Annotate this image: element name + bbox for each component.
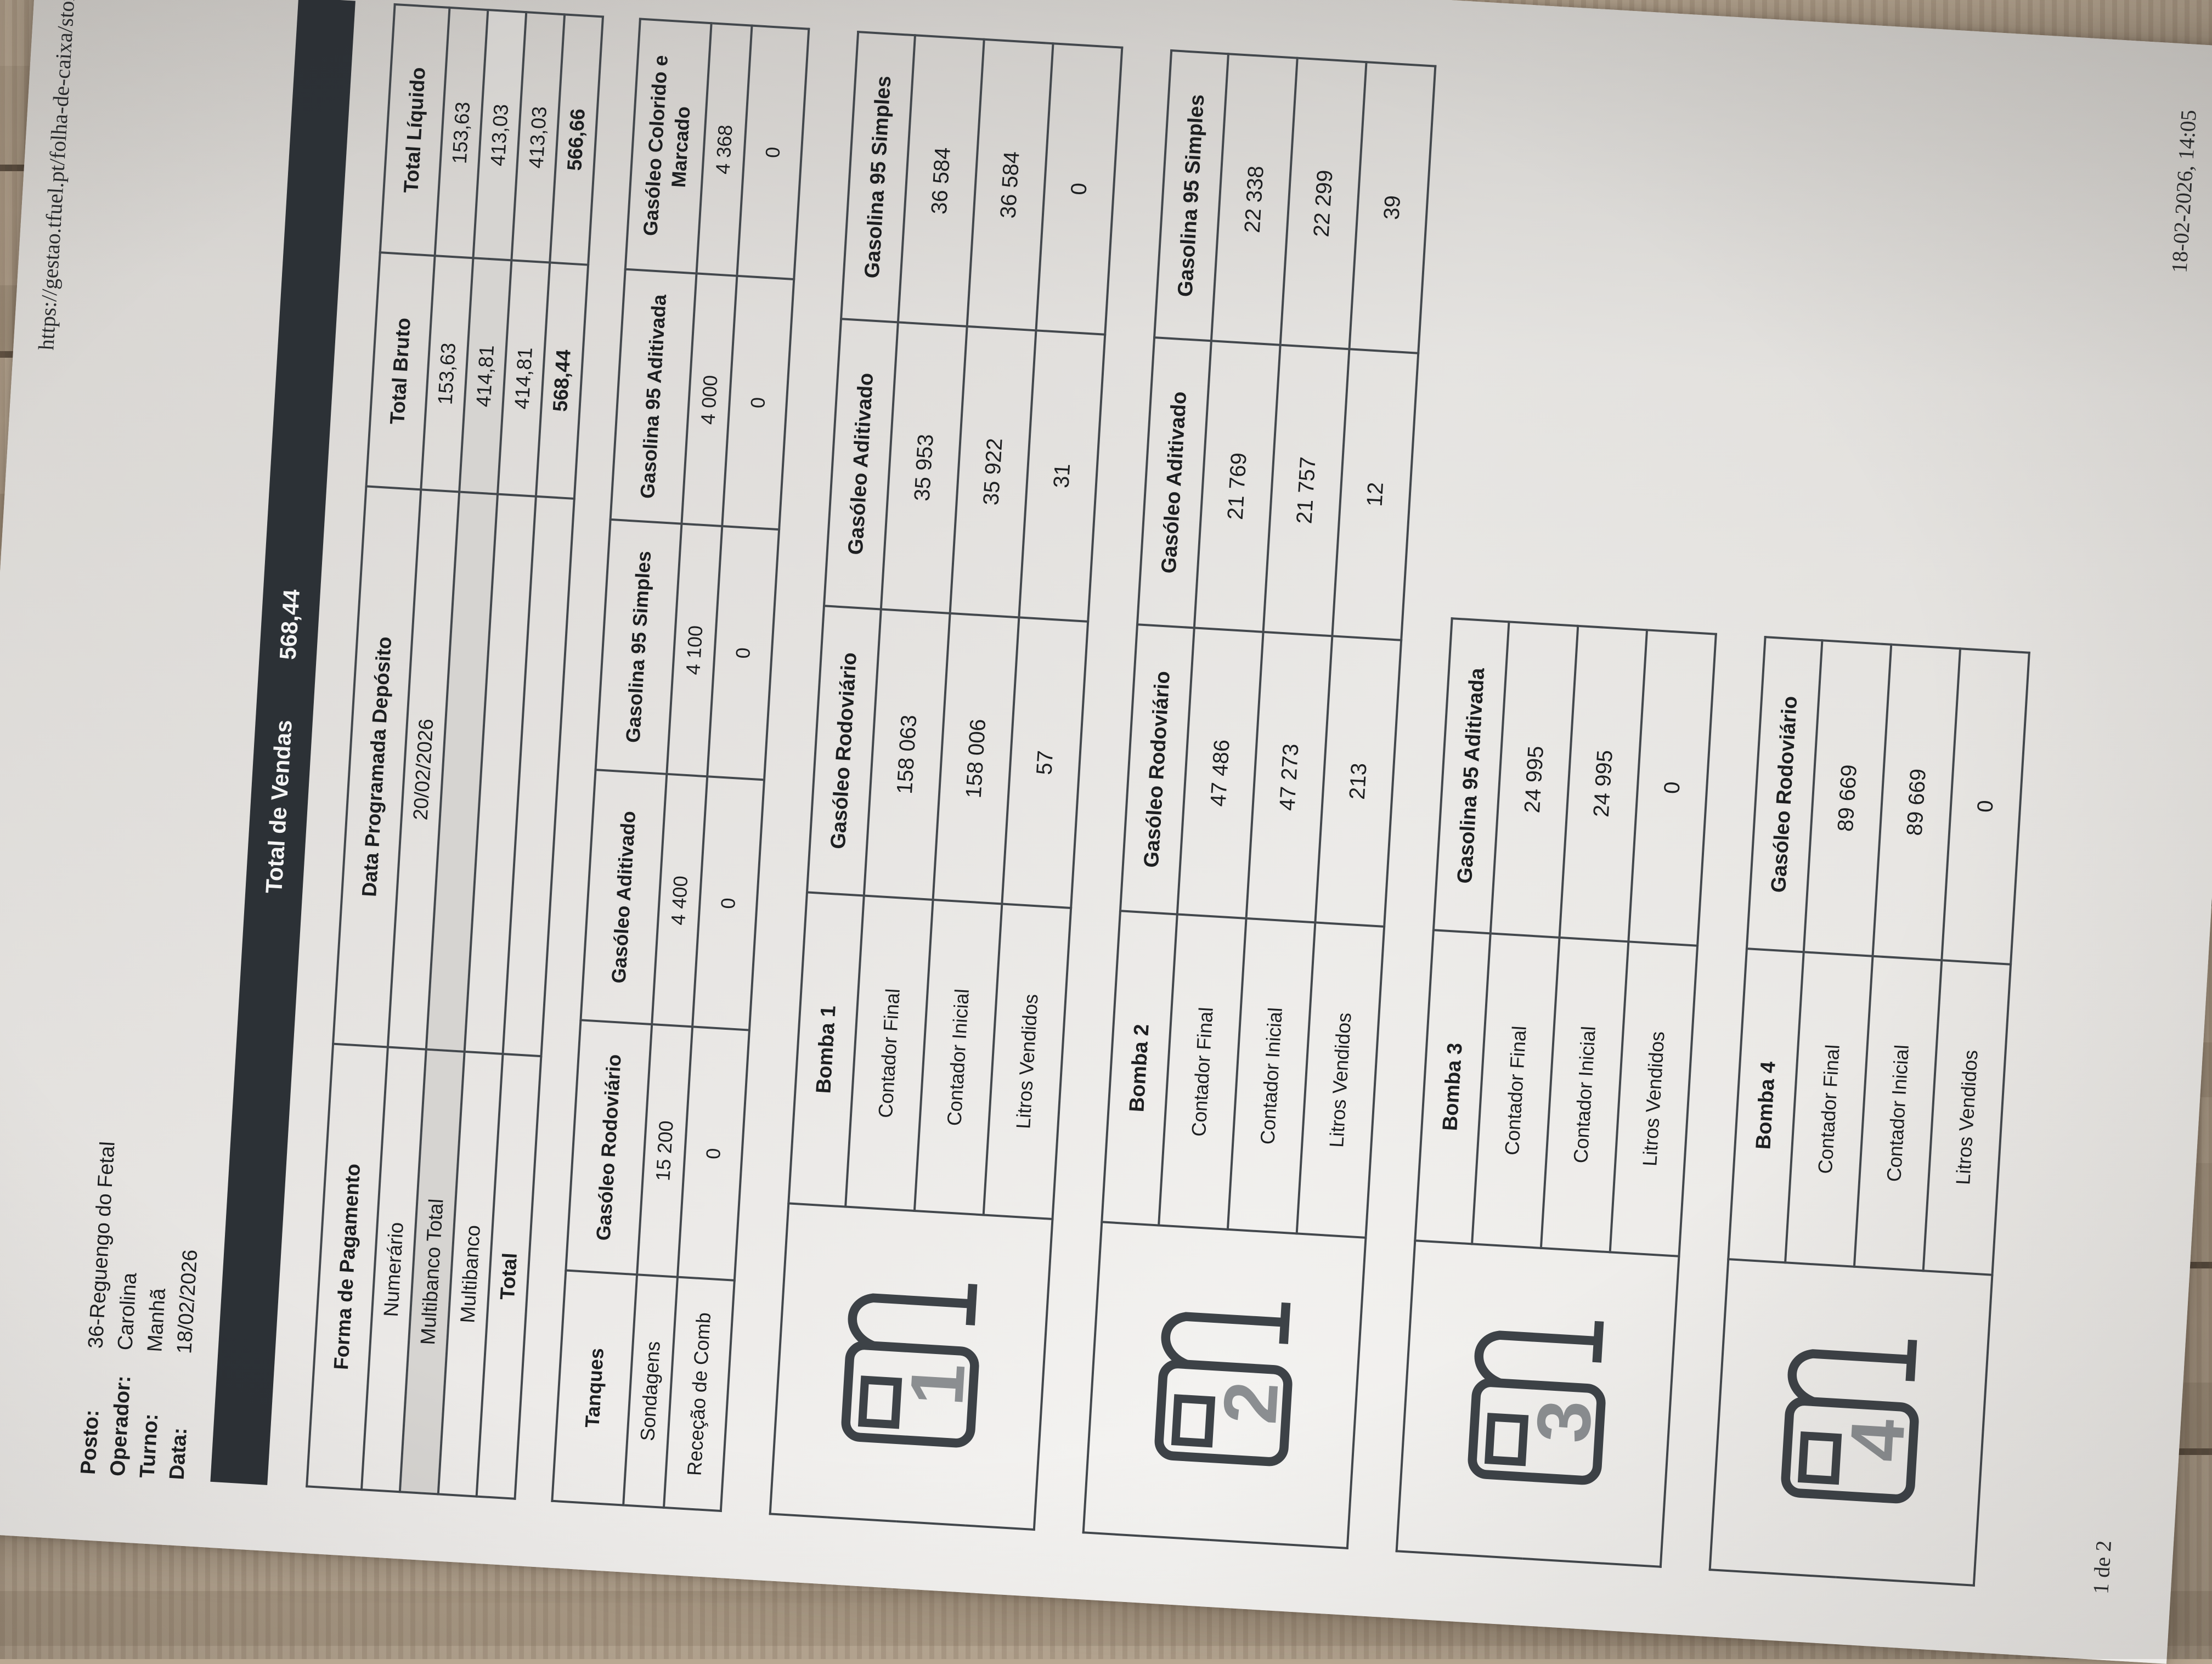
turno-value: Manhã [140, 1288, 173, 1353]
fuel-pump-icon: 2 [1126, 1289, 1328, 1481]
printed-cash-sheet: Folha de Caixa https://gestao.tfuel.pt/f… [0, 0, 2212, 1664]
operador-value: Carolina [110, 1272, 144, 1351]
header-tanques: Tanques [552, 1271, 637, 1505]
fuel-pump-icon: 4 [1752, 1326, 1955, 1518]
pump-icon-cell: 3 [1397, 1240, 1679, 1567]
pump-icon-cell: 4 [1710, 1259, 1993, 1586]
pump-number: 4 [1834, 1417, 1921, 1464]
bomba2-table: 2 Bomba 2 Gasóleo Rodoviário Gasóleo Adi… [1082, 49, 1437, 1549]
fuel-pump-icon: 1 [812, 1271, 1015, 1463]
page-url: https://gestao.tfuel.pt/folha-de-caixa/s… [33, 0, 81, 351]
print-datetime: 18-02-2026, 14:05 [2166, 109, 2202, 274]
page-number: 1 de 2 [2087, 1539, 2117, 1594]
payment-table: Forma de Pagamento Data Programada Depós… [306, 3, 604, 1500]
bomba3-table: 3 Bomba 3 Gasolina 95 Aditivada Contador… [1396, 617, 1717, 1568]
pump-number: 2 [1207, 1379, 1294, 1426]
pump-number: 3 [1521, 1398, 1607, 1445]
data-value: 18/02/2026 [170, 1249, 205, 1355]
bomba4-table: 4 Bomba 4 Gasóleo Rodoviário Contador Fi… [1709, 636, 2030, 1587]
bomba1-table: 1 Bomba 1 Gasóleo Rodoviário Gasóleo Adi… [769, 31, 1124, 1531]
fuel-pump-icon: 3 [1439, 1308, 1641, 1500]
total-vendas-value: 568,44 [275, 589, 306, 661]
pump-icon-cell: 1 [770, 1203, 1053, 1530]
total-vendas-label: Total de Vendas [261, 719, 297, 894]
pump-icon-cell: 2 [1084, 1222, 1366, 1548]
pump-number: 1 [894, 1361, 981, 1408]
